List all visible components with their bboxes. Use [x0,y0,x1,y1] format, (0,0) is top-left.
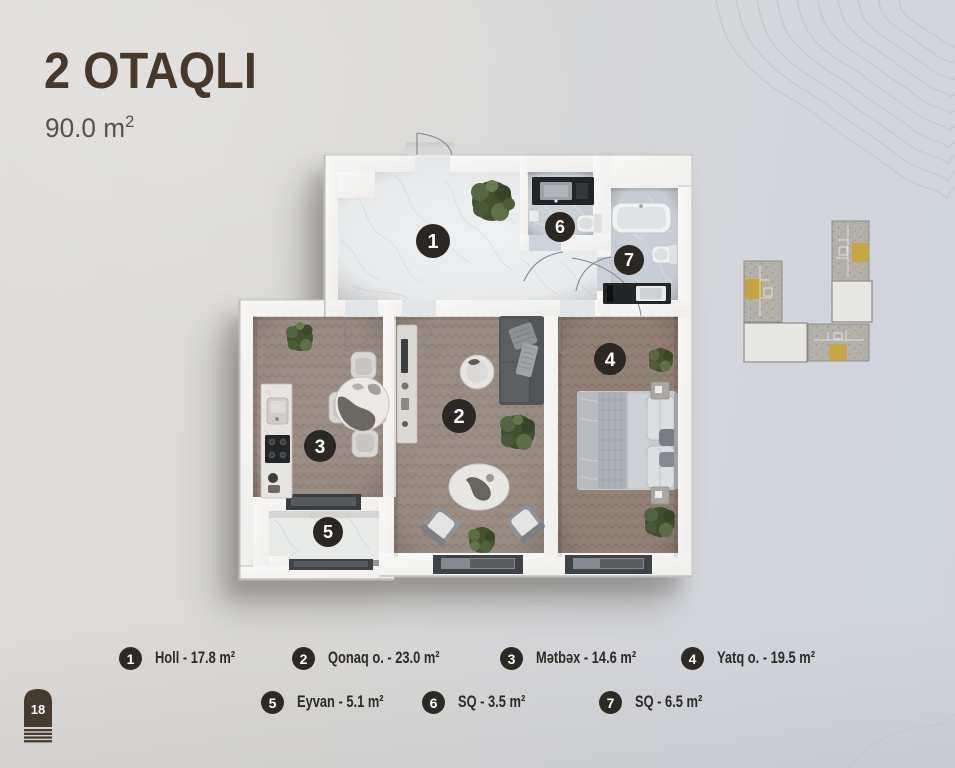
svg-text:2: 2 [453,406,464,428]
svg-text:5: 5 [323,522,333,542]
svg-text:6: 6 [555,217,565,237]
svg-text:1: 1 [427,231,438,253]
svg-text:4: 4 [605,350,616,371]
svg-text:3: 3 [315,437,326,458]
svg-text:18: 18 [31,702,45,717]
svg-text:7: 7 [624,250,634,270]
